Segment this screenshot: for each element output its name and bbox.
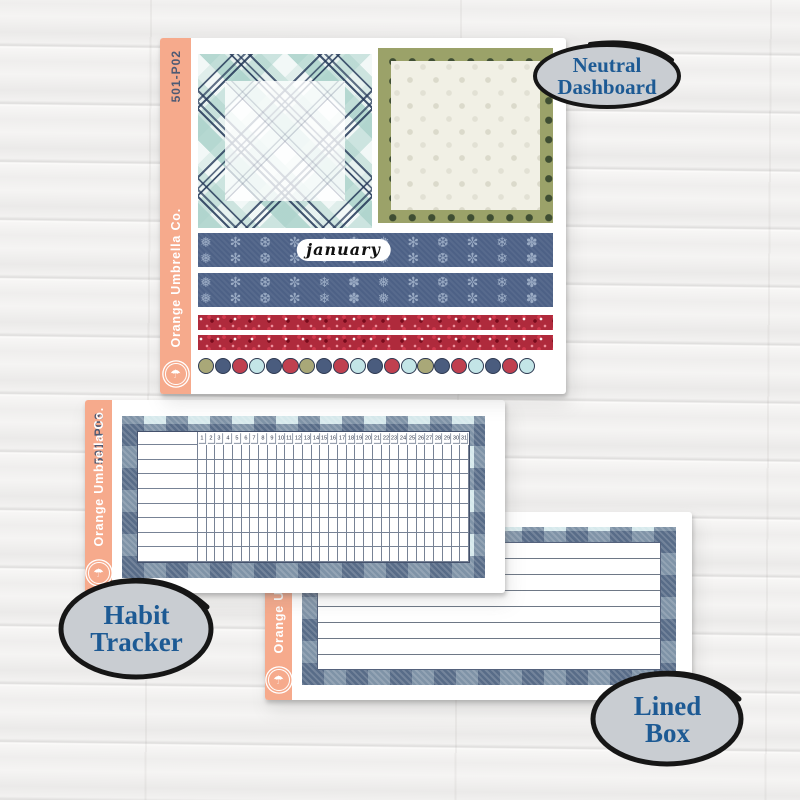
tracker-day-number: 31	[461, 433, 468, 443]
tracker-day-cell	[320, 518, 329, 533]
tracker-day-cell	[215, 533, 224, 548]
tracker-day-cell	[382, 518, 391, 533]
tracker-day-cell	[355, 504, 364, 519]
tracker-day-cell	[355, 474, 364, 489]
tracker-day-cell	[460, 460, 469, 475]
tracker-day-cell	[443, 489, 452, 504]
tracker-day-cell	[373, 504, 382, 519]
tracker-day-cell	[338, 460, 347, 475]
color-dot-sticker	[316, 358, 332, 374]
tracker-day-cell	[294, 460, 303, 475]
color-dot-sticker	[333, 358, 349, 374]
snowflake-washi-strip: ❅ ✻ ❆ ✼ ❄ ✽ ❅ ✻ ❆ ✼ ❄ ✽ ❅ ✻ ❆ ✼ ❄ ✽ ❅ ✻ …	[198, 273, 553, 307]
callout-neutral-dashboard: Neutral Dashboard	[530, 40, 684, 112]
tracker-day-cell	[452, 518, 461, 533]
tracker-day-number: 19	[356, 433, 363, 443]
tracker-day-cell	[259, 533, 268, 548]
tracker-day-cell	[373, 489, 382, 504]
tracker-day-cell	[303, 504, 312, 519]
tracker-day-cell	[259, 445, 268, 460]
color-dot-sticker	[249, 358, 265, 374]
callout-line2: Dashboard	[557, 76, 656, 98]
callout-line2: Tracker	[90, 629, 182, 656]
tracker-day-cell	[224, 504, 233, 519]
tracker-day-cell	[215, 518, 224, 533]
tracker-day-cell	[233, 547, 242, 562]
tracker-day-cell	[242, 460, 251, 475]
tracker-day-cell	[303, 533, 312, 548]
tracker-day-cell	[259, 474, 268, 489]
tracker-day-cell	[268, 504, 277, 519]
tracker-day-cell	[452, 445, 461, 460]
umbrella-logo-icon: ☂	[268, 669, 290, 691]
tracker-day-cell	[198, 547, 207, 562]
tracker-day-cell	[320, 489, 329, 504]
tracker-day-cell	[329, 547, 338, 562]
tracker-day-cell	[382, 489, 391, 504]
tracker-day-cell	[250, 445, 259, 460]
tracker-day-cell	[224, 474, 233, 489]
tracker-day-number: 9	[269, 433, 276, 443]
tracker-day-cell	[215, 460, 224, 475]
color-dot-sticker	[502, 358, 518, 374]
tracker-day-number: 6	[243, 433, 250, 443]
tracker-day-cell	[382, 504, 391, 519]
tracker-day-number: 28	[435, 433, 442, 443]
tracker-day-cell	[303, 547, 312, 562]
tracker-day-cell	[460, 518, 469, 533]
tracker-day-cell	[408, 504, 417, 519]
tracker-day-number: 10	[278, 433, 285, 443]
tracker-day-cell	[268, 533, 277, 548]
tracker-day-cell	[285, 474, 294, 489]
tracker-day-cell	[452, 489, 461, 504]
tracker-day-number: 8	[260, 433, 267, 443]
tracker-day-cell	[207, 504, 216, 519]
tracker-day-cell	[355, 518, 364, 533]
tracker-day-cell	[242, 547, 251, 562]
tracker-day-cell	[382, 533, 391, 548]
tracker-day-cell	[207, 533, 216, 548]
tracker-day-cell	[364, 445, 373, 460]
tracker-day-cell	[434, 445, 443, 460]
tracker-day-cell	[364, 533, 373, 548]
tracker-day-cell	[207, 474, 216, 489]
tracker-day-cell	[268, 460, 277, 475]
tracker-habit-label-cell	[138, 489, 198, 504]
tracker-day-cell	[460, 547, 469, 562]
tracker-day-cell	[373, 533, 382, 548]
tracker-day-cell	[373, 518, 382, 533]
tracker-day-cell	[390, 547, 399, 562]
tracker-day-cell	[338, 474, 347, 489]
tracker-day-cell	[312, 445, 321, 460]
tracker-day-number: 17	[339, 433, 346, 443]
tracker-day-cell	[425, 489, 434, 504]
tracker-day-cell	[294, 504, 303, 519]
tracker-day-number: 21	[374, 433, 381, 443]
tracker-day-cell	[373, 445, 382, 460]
tracker-habit-label-column	[138, 432, 198, 445]
tracker-day-cell	[434, 533, 443, 548]
dot-row	[198, 357, 553, 375]
tracker-day-cell	[452, 460, 461, 475]
tracker-day-number: 3	[216, 433, 223, 443]
tracker-day-cell	[268, 445, 277, 460]
tracker-day-cell	[347, 518, 356, 533]
tracker-day-cell	[215, 445, 224, 460]
callout-line1: Neutral	[573, 54, 642, 76]
tracker-day-cell	[250, 489, 259, 504]
tracker-day-cell	[364, 460, 373, 475]
tracker-day-cell	[224, 533, 233, 548]
tracker-day-cell	[338, 547, 347, 562]
tracker-day-cell	[198, 474, 207, 489]
tracker-day-cell	[347, 445, 356, 460]
tracker-day-cell	[224, 460, 233, 475]
month-label: january	[296, 239, 391, 261]
tracker-day-cell	[303, 489, 312, 504]
tracker-day-cell	[399, 533, 408, 548]
tracker-day-cell	[233, 518, 242, 533]
tracker-day-cell	[338, 504, 347, 519]
tracker-day-number: 23	[391, 433, 398, 443]
tracker-day-cell	[452, 504, 461, 519]
color-dot-sticker	[519, 358, 535, 374]
product-code: 501-P02	[169, 50, 183, 102]
color-dot-sticker	[299, 358, 315, 374]
snowflake-pattern: ❅ ✻ ❆ ✼ ❄ ✽ ❅ ✻ ❆ ✼ ❄ ✽ ❅ ✻ ❆ ✼ ❄ ✽ ❅ ✻ …	[198, 273, 553, 307]
tracker-day-cell	[338, 445, 347, 460]
tracker-day-cell	[242, 489, 251, 504]
tracker-day-cell	[242, 504, 251, 519]
tracker-day-cell	[347, 489, 356, 504]
brand-name: Orange Umbrella Co.	[92, 407, 106, 547]
tracker-day-cell	[207, 489, 216, 504]
tracker-day-cell	[250, 533, 259, 548]
tracker-day-cell	[425, 474, 434, 489]
tracker-day-number: 5	[234, 433, 241, 443]
tracker-day-cell	[207, 518, 216, 533]
tracker-day-cell	[198, 460, 207, 475]
tracker-day-cell	[277, 489, 286, 504]
tracker-day-cell	[373, 474, 382, 489]
tracker-day-cell	[207, 460, 216, 475]
tracker-day-cell	[355, 547, 364, 562]
tracker-day-cell	[434, 504, 443, 519]
tracker-day-cell	[390, 518, 399, 533]
tracker-day-cell	[294, 445, 303, 460]
tracker-day-cell	[408, 533, 417, 548]
tracker-day-cell	[320, 533, 329, 548]
tracker-day-cell	[443, 474, 452, 489]
color-dot-sticker	[350, 358, 366, 374]
tracker-day-cell	[425, 547, 434, 562]
tracker-day-cell	[417, 504, 426, 519]
tracker-day-cell	[373, 547, 382, 562]
tracker-day-cell	[347, 504, 356, 519]
callout-lined-box: Lined Box	[589, 671, 746, 768]
tracker-day-cell	[399, 460, 408, 475]
tracker-day-cell	[242, 533, 251, 548]
tracker-day-cell	[303, 518, 312, 533]
tracker-day-cell	[434, 460, 443, 475]
tracker-day-cell	[198, 504, 207, 519]
tracker-day-cell	[443, 533, 452, 548]
tracker-day-cell	[460, 504, 469, 519]
tracker-day-cell	[233, 504, 242, 519]
tracker-day-cell	[259, 504, 268, 519]
tracker-day-cell	[259, 460, 268, 475]
callout-line2: Box	[645, 720, 690, 747]
tracker-day-cell	[408, 547, 417, 562]
tracker-day-number: 2	[208, 433, 215, 443]
snowflake-washi-strip: ❅ ✻ ❆ ✼ ❄ ✽ ❅ ✻ ❆ ✼ ❄ ✽ ❅ ✻ ❆ ✼ ❄ ✽ ❅ ✻ …	[198, 233, 553, 267]
tracker-day-cell	[320, 547, 329, 562]
tracker-day-cell	[460, 489, 469, 504]
tracker-day-cell	[303, 474, 312, 489]
tracker-day-cell	[259, 518, 268, 533]
tracker-day-cell	[329, 474, 338, 489]
tracker-day-cell	[250, 460, 259, 475]
tracker-day-number: 30	[452, 433, 459, 443]
tracker-day-cell	[277, 518, 286, 533]
sticker-sheet-neutral-dashboard: 501-P02 Orange Umbrella Co. ☂ ❅ ✻ ❆ ✼ ❄ …	[160, 38, 566, 394]
tracker-day-cell	[425, 504, 434, 519]
tracker-day-cell	[434, 547, 443, 562]
color-dot-sticker	[485, 358, 501, 374]
tracker-day-cell	[390, 504, 399, 519]
tracker-day-cell	[452, 533, 461, 548]
tracker-day-number: 18	[347, 433, 354, 443]
tracker-day-cell	[198, 518, 207, 533]
tracker-day-cell	[250, 504, 259, 519]
tracker-day-cell	[417, 518, 426, 533]
red-glitter-strip	[198, 335, 553, 350]
tracker-day-cell	[399, 489, 408, 504]
color-dot-sticker	[417, 358, 433, 374]
tracker-day-cell	[320, 474, 329, 489]
tracker-day-cell	[207, 445, 216, 460]
tracker-day-cell	[224, 547, 233, 562]
tracker-habit-label-cell	[138, 518, 198, 533]
tracker-day-cell	[399, 518, 408, 533]
tracker-day-cell	[320, 460, 329, 475]
tracker-day-cell	[233, 460, 242, 475]
tracker-day-cell	[347, 460, 356, 475]
tracker-day-cell	[425, 533, 434, 548]
tracker-day-cell	[399, 474, 408, 489]
tracker-day-cell	[233, 489, 242, 504]
tracker-day-cell	[443, 460, 452, 475]
tracker-day-cell	[382, 547, 391, 562]
tracker-day-number: 13	[304, 433, 311, 443]
tracker-day-cell	[425, 445, 434, 460]
tracker-day-number: 12	[295, 433, 302, 443]
tracker-day-cell	[233, 445, 242, 460]
color-dot-sticker	[451, 358, 467, 374]
tracker-day-cell	[268, 518, 277, 533]
tracker-day-number: 20	[365, 433, 372, 443]
tracker-day-cell	[215, 474, 224, 489]
tracker-day-cell	[364, 489, 373, 504]
tracker-day-cell	[207, 547, 216, 562]
polka-dot-fullbox-sticker	[378, 48, 553, 223]
callout-line1: Lined	[634, 693, 702, 720]
tracker-day-cell	[285, 547, 294, 562]
tracker-day-cell	[355, 533, 364, 548]
tracker-day-cell	[233, 474, 242, 489]
tracker-day-cell	[250, 474, 259, 489]
tracker-day-cell	[294, 474, 303, 489]
tracker-habit-label-cell	[138, 445, 198, 460]
tracker-day-cell	[338, 489, 347, 504]
tracker-day-cell	[303, 445, 312, 460]
tracker-day-number: 25	[409, 433, 416, 443]
tracker-day-cell	[460, 474, 469, 489]
tracker-day-cell	[390, 460, 399, 475]
tracker-grid: 1234567891011121314151617181920212223242…	[137, 431, 470, 563]
umbrella-logo-icon: ☂	[165, 363, 187, 385]
tracker-day-cell	[294, 489, 303, 504]
tracker-day-cell	[364, 504, 373, 519]
tracker-day-cell	[320, 504, 329, 519]
tracker-day-cell	[277, 460, 286, 475]
color-dot-sticker	[282, 358, 298, 374]
tracker-habit-label-cell	[138, 547, 198, 562]
color-dot-sticker	[468, 358, 484, 374]
tracker-day-cell	[425, 518, 434, 533]
tracker-day-number: 24	[400, 433, 407, 443]
tracker-day-cell	[224, 489, 233, 504]
tracker-day-number: 14	[313, 433, 320, 443]
tracker-day-cell	[198, 489, 207, 504]
tracker-day-cell	[390, 445, 399, 460]
brand-name: Orange Umbrella Co.	[169, 208, 183, 348]
tracker-day-cell	[294, 533, 303, 548]
tracker-day-cell	[329, 460, 338, 475]
tracker-day-cell	[443, 518, 452, 533]
tracker-day-cell	[312, 518, 321, 533]
tracker-day-cell	[355, 460, 364, 475]
tracker-day-cell	[215, 547, 224, 562]
tracker-day-cell	[382, 445, 391, 460]
tracker-day-cell	[215, 504, 224, 519]
tracker-day-cell	[277, 504, 286, 519]
tracker-day-cell	[399, 504, 408, 519]
tracker-day-cell	[329, 533, 338, 548]
tracker-day-cell	[460, 445, 469, 460]
tracker-day-cell	[408, 518, 417, 533]
tracker-day-cell	[425, 460, 434, 475]
tracker-day-cell	[417, 547, 426, 562]
tracker-day-number: 27	[426, 433, 433, 443]
tracker-day-cell	[338, 533, 347, 548]
habit-tracker-sticker: 1234567891011121314151617181920212223242…	[122, 416, 485, 578]
tracker-day-number: 4	[225, 433, 232, 443]
tracker-day-cell	[364, 474, 373, 489]
tracker-day-cell	[312, 533, 321, 548]
tracker-day-cell	[285, 445, 294, 460]
tracker-day-cell	[312, 547, 321, 562]
tracker-day-cell	[399, 445, 408, 460]
tracker-day-cell	[329, 518, 338, 533]
tracker-day-cell	[277, 474, 286, 489]
tracker-day-cell	[242, 474, 251, 489]
callout-habit-tracker: Habit Tracker	[57, 577, 216, 681]
tracker-day-number: 16	[330, 433, 337, 443]
tracker-day-cell	[355, 489, 364, 504]
tracker-day-cell	[285, 504, 294, 519]
tracker-day-cell	[434, 518, 443, 533]
plaid-fullbox-sticker	[198, 54, 372, 228]
tracker-day-cell	[285, 518, 294, 533]
tracker-day-cell	[312, 460, 321, 475]
tracker-day-cell	[399, 547, 408, 562]
tracker-day-cell	[285, 489, 294, 504]
tracker-day-cell	[434, 474, 443, 489]
tracker-day-cell	[320, 445, 329, 460]
color-dot-sticker	[401, 358, 417, 374]
tracker-day-cell	[268, 547, 277, 562]
tracker-day-cell	[373, 460, 382, 475]
color-dot-sticker	[384, 358, 400, 374]
tracker-day-cell	[452, 474, 461, 489]
tracker-day-cell	[408, 445, 417, 460]
tracker-day-cell	[303, 460, 312, 475]
color-dot-sticker	[215, 358, 231, 374]
color-dot-sticker	[367, 358, 383, 374]
tracker-day-cell	[417, 445, 426, 460]
tracker-day-cell	[417, 533, 426, 548]
tracker-day-cell	[268, 489, 277, 504]
tracker-habit-label-cell	[138, 460, 198, 475]
tracker-day-cell	[417, 489, 426, 504]
tracker-day-cell	[198, 445, 207, 460]
tracker-day-cell	[312, 504, 321, 519]
tracker-day-number: 1	[199, 433, 206, 443]
color-dot-sticker	[232, 358, 248, 374]
tracker-day-cell	[285, 460, 294, 475]
tracker-day-number: 7	[251, 433, 258, 443]
callout-line1: Habit	[103, 602, 169, 629]
tracker-day-cell	[417, 460, 426, 475]
tracker-day-cell	[364, 518, 373, 533]
tracker-day-cell	[382, 460, 391, 475]
tracker-day-cell	[312, 474, 321, 489]
tracker-day-cell	[329, 504, 338, 519]
color-dot-sticker	[198, 358, 214, 374]
tracker-day-cell	[242, 445, 251, 460]
sheet-sidebar: 501-P03 Orange Umbrella Co. ☂	[85, 400, 112, 593]
tracker-day-cell	[443, 547, 452, 562]
tracker-day-cell	[347, 547, 356, 562]
tracker-day-cell	[224, 518, 233, 533]
sheet-sidebar: 501-P02 Orange Umbrella Co. ☂	[160, 38, 191, 394]
tracker-day-cell	[443, 504, 452, 519]
tracker-habit-label-cell	[138, 533, 198, 548]
tracker-day-cell	[294, 518, 303, 533]
tracker-day-cell	[329, 489, 338, 504]
sticker-sheet-habit-tracker: 501-P03 Orange Umbrella Co. ☂ 1234567891…	[85, 400, 505, 593]
tracker-day-cell	[242, 518, 251, 533]
tracker-day-cell	[443, 445, 452, 460]
tracker-day-cell	[259, 489, 268, 504]
tracker-day-cell	[417, 474, 426, 489]
tracker-day-cell	[347, 533, 356, 548]
tracker-day-cell	[408, 474, 417, 489]
tracker-habit-label-cell	[138, 504, 198, 519]
